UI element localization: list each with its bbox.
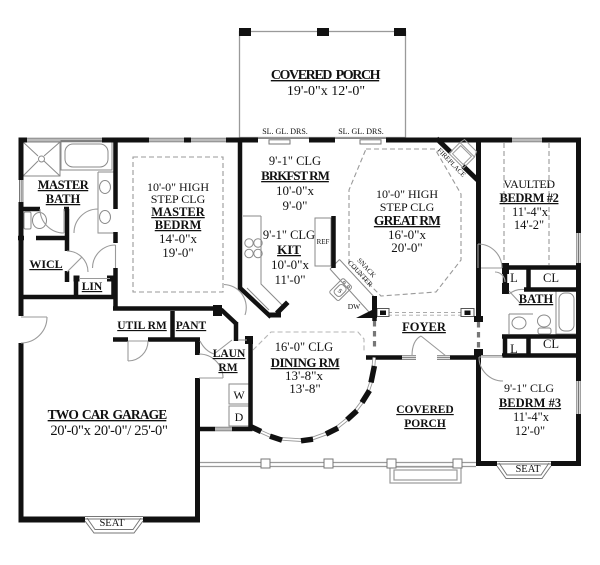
svg-text:COVERED PORCH: COVERED PORCH bbox=[271, 68, 381, 83]
svg-text:13'-8": 13'-8" bbox=[289, 381, 320, 396]
svg-text:14'-0"x: 14'-0"x bbox=[159, 231, 197, 246]
svg-text:BRKFST RM: BRKFST RM bbox=[261, 168, 329, 183]
svg-text:GREAT RM: GREAT RM bbox=[374, 213, 441, 228]
svg-text:D: D bbox=[235, 410, 244, 424]
svg-text:10'-0" HIGH: 10'-0" HIGH bbox=[376, 187, 438, 201]
svg-text:WICL: WICL bbox=[29, 257, 62, 271]
svg-text:TWO CAR GARAGE: TWO CAR GARAGE bbox=[48, 407, 168, 422]
svg-text:19'-0"x 12'-0": 19'-0"x 12'-0" bbox=[287, 84, 365, 99]
svg-text:STEP CLG: STEP CLG bbox=[151, 192, 206, 206]
svg-text:RM: RM bbox=[218, 362, 237, 374]
svg-text:BEDRM #3: BEDRM #3 bbox=[499, 396, 561, 410]
svg-text:L: L bbox=[510, 271, 518, 285]
svg-text:DW: DW bbox=[348, 302, 361, 311]
svg-text:REF: REF bbox=[317, 238, 330, 246]
svg-text:KIT: KIT bbox=[277, 242, 301, 257]
svg-text:PANT: PANT bbox=[176, 320, 207, 332]
svg-text:9'-1" CLG: 9'-1" CLG bbox=[269, 154, 321, 168]
svg-text:PORCH: PORCH bbox=[404, 418, 446, 430]
svg-text:L: L bbox=[510, 342, 518, 356]
svg-text:SEAT: SEAT bbox=[99, 518, 125, 529]
svg-text:20'-0"x 20'-0"/ 25'-0": 20'-0"x 20'-0"/ 25'-0" bbox=[50, 423, 168, 439]
svg-text:VAULTED: VAULTED bbox=[503, 177, 555, 191]
svg-text:11'-4"x: 11'-4"x bbox=[512, 205, 549, 219]
svg-text:BEDRM: BEDRM bbox=[155, 218, 202, 232]
svg-text:9'-1" CLG: 9'-1" CLG bbox=[263, 228, 315, 242]
svg-text:11'-4"x: 11'-4"x bbox=[513, 410, 550, 424]
svg-text:BATH: BATH bbox=[519, 292, 554, 306]
svg-text:10'-0"x: 10'-0"x bbox=[271, 257, 309, 272]
svg-text:UTIL RM: UTIL RM bbox=[117, 320, 167, 332]
svg-text:SL. GL. DRS.: SL. GL. DRS. bbox=[262, 127, 308, 136]
svg-text:SEAT: SEAT bbox=[515, 464, 541, 475]
svg-text:11'-0": 11'-0" bbox=[275, 272, 306, 287]
svg-text:LAUN: LAUN bbox=[213, 348, 246, 360]
svg-text:SL. GL. DRS.: SL. GL. DRS. bbox=[338, 127, 384, 136]
svg-text:BATH: BATH bbox=[46, 192, 81, 206]
svg-text:20'-0": 20'-0" bbox=[391, 240, 422, 255]
svg-text:9'-0": 9'-0" bbox=[283, 198, 308, 213]
svg-text:MASTER: MASTER bbox=[151, 205, 205, 219]
svg-text:LIN: LIN bbox=[82, 281, 103, 293]
svg-text:CL: CL bbox=[543, 337, 559, 351]
svg-text:BEDRM #2: BEDRM #2 bbox=[500, 191, 559, 205]
svg-text:9'-1" CLG: 9'-1" CLG bbox=[504, 381, 554, 395]
svg-text:19'-0": 19'-0" bbox=[162, 245, 193, 260]
svg-text:10'-0"x: 10'-0"x bbox=[276, 183, 314, 198]
svg-text:MASTER: MASTER bbox=[38, 178, 90, 192]
svg-text:CL: CL bbox=[543, 271, 559, 285]
svg-text:W: W bbox=[233, 388, 245, 402]
svg-text:12'-0": 12'-0" bbox=[515, 424, 545, 438]
svg-text:STEP CLG: STEP CLG bbox=[380, 200, 435, 214]
svg-text:FOYER: FOYER bbox=[402, 320, 447, 334]
svg-text:16'-0" CLG: 16'-0" CLG bbox=[275, 340, 333, 354]
svg-text:COVERED: COVERED bbox=[396, 404, 454, 416]
svg-text:14'-2": 14'-2" bbox=[514, 218, 544, 232]
